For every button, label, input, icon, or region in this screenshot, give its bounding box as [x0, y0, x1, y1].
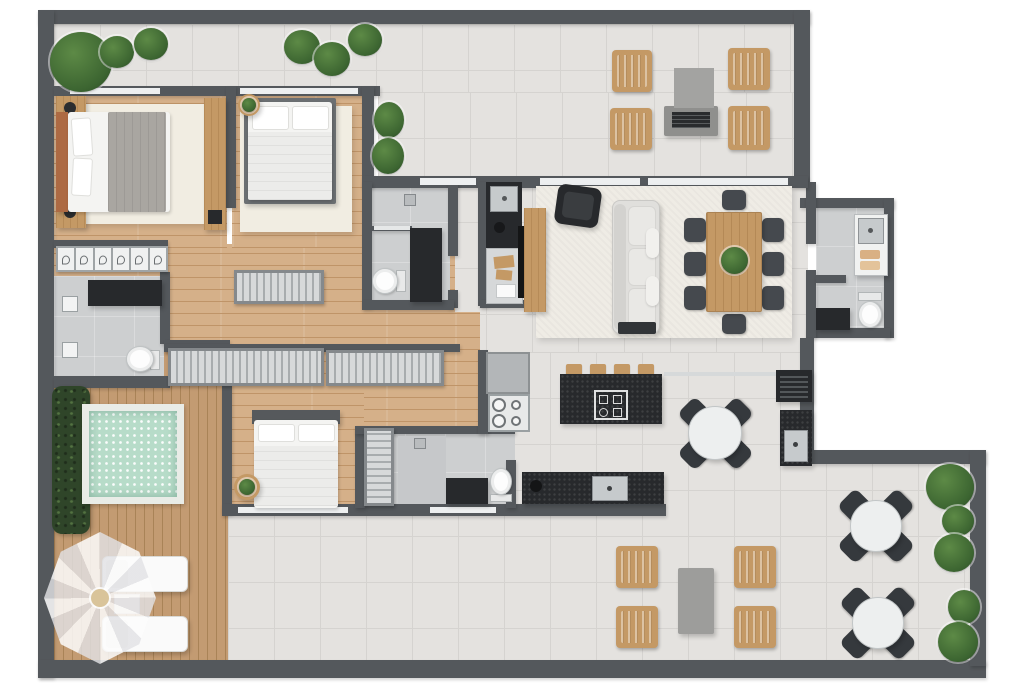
- wardrobe-rail: [237, 273, 321, 301]
- burner: [613, 395, 622, 404]
- potted-plant: [374, 102, 404, 138]
- potted-plant: [348, 24, 382, 56]
- wall-segment: [448, 182, 458, 256]
- wall-segment: [812, 450, 986, 464]
- fire-table-top: [674, 68, 714, 108]
- sliding-glass-door: [540, 178, 640, 185]
- outdoor-coffee-table: [678, 568, 714, 634]
- wall-segment: [794, 10, 810, 186]
- toilet-tank: [858, 292, 882, 301]
- potted-plant: [942, 506, 974, 536]
- dining-chair: [722, 190, 746, 210]
- counter-basin: [530, 480, 542, 492]
- wardrobe-rail: [171, 351, 321, 383]
- wardrobe: [326, 350, 444, 386]
- potted-plant: [934, 534, 974, 572]
- plunge-pool: [82, 404, 184, 504]
- chair-slats: [621, 551, 653, 583]
- potted-plant: [100, 36, 134, 68]
- wall-segment: [806, 270, 816, 338]
- outside-mask: [810, 336, 1024, 452]
- dining-chair: [684, 218, 706, 242]
- dining-chair: [762, 286, 784, 310]
- toilet-bowl: [126, 346, 154, 372]
- tv-console: [524, 208, 546, 312]
- potted-plant: [242, 98, 256, 112]
- wood-lounge-chair: [728, 48, 770, 90]
- closet-module: [95, 248, 111, 270]
- bathroom3-vanity: [446, 478, 488, 504]
- pillow: [258, 424, 295, 442]
- burner: [511, 416, 521, 426]
- potted-plant: [134, 28, 168, 60]
- parasol-pole: [91, 589, 109, 607]
- sofa-bolster: [646, 276, 659, 306]
- towel: [860, 261, 880, 270]
- toilet-bowl: [490, 468, 512, 495]
- linen-shelf: [364, 428, 394, 506]
- closet-module: [113, 248, 129, 270]
- grill-grate: [780, 376, 808, 398]
- sliding-glass-door: [648, 178, 788, 185]
- wood-lounge-chair: [616, 606, 658, 648]
- chair-slats: [733, 53, 765, 85]
- window: [240, 88, 358, 94]
- burner: [599, 408, 608, 417]
- toilet-tank: [490, 494, 512, 502]
- wardrobe: [234, 270, 324, 304]
- closet-module: [131, 248, 147, 270]
- wood-lounge-chair: [616, 546, 658, 588]
- chair-slats: [617, 55, 647, 87]
- burner: [492, 414, 506, 428]
- bathroomR-cabinet: [816, 308, 850, 330]
- wardrobe-rail: [329, 353, 441, 383]
- cutting-board: [493, 255, 514, 269]
- closet-module: [150, 248, 166, 270]
- potted-plant: [926, 464, 974, 510]
- bistro-table: [852, 597, 904, 649]
- counter-basin: [494, 222, 505, 233]
- table-centerpiece-plant: [721, 247, 748, 274]
- towel-bar: [374, 226, 410, 230]
- wood-lounge-chair: [610, 108, 652, 150]
- chair-slats: [615, 113, 647, 145]
- potted-plant: [314, 42, 350, 76]
- faucet: [868, 228, 873, 233]
- potted-plant: [50, 32, 112, 92]
- cutting-board: [496, 269, 513, 280]
- faucet: [793, 442, 798, 447]
- bed2-duvet: [248, 132, 332, 200]
- kitchen-counter-dark: [486, 214, 522, 250]
- wall-segment: [38, 10, 810, 24]
- pillow: [71, 158, 93, 197]
- dining-chair: [684, 286, 706, 310]
- wall-cabinet: [62, 296, 78, 312]
- burner: [492, 398, 506, 412]
- bed1-blanket: [108, 112, 166, 212]
- wall-segment: [222, 384, 232, 514]
- closet-module-row: [56, 246, 168, 272]
- chair-slats: [739, 611, 771, 643]
- wall-segment: [816, 275, 846, 283]
- shelf-slats: [367, 431, 391, 503]
- potted-plant: [239, 479, 255, 495]
- entry-glass-door: [420, 178, 476, 185]
- glass-rail: [664, 372, 778, 376]
- wood-lounge-chair: [734, 546, 776, 588]
- floor-hallway-ext: [455, 312, 480, 434]
- sofa-backrest: [614, 204, 626, 330]
- wall-segment: [226, 86, 236, 208]
- dining-chair: [762, 252, 784, 276]
- round-dining-table: [688, 406, 742, 460]
- burner: [613, 408, 622, 417]
- shower-head: [404, 194, 416, 206]
- dining-chair: [722, 314, 746, 334]
- bed1-headboard: [56, 112, 68, 212]
- sofa-base: [618, 322, 656, 334]
- pillow: [71, 117, 94, 156]
- shower-head: [414, 438, 426, 449]
- bed3-duvet: [254, 446, 338, 506]
- sofa-bolster: [646, 228, 659, 258]
- bathroom2-vanity: [410, 228, 442, 302]
- laundry-counter: [88, 280, 162, 306]
- window: [430, 507, 496, 513]
- wardrobe: [168, 348, 324, 386]
- potted-plant: [938, 622, 978, 662]
- closet-module: [58, 248, 74, 270]
- toilet-bowl: [858, 301, 882, 328]
- wood-lounge-chair: [612, 50, 652, 92]
- burner: [511, 400, 521, 410]
- faucet: [607, 486, 612, 491]
- chair-slats: [733, 111, 765, 145]
- wall-segment: [38, 660, 986, 678]
- towel: [860, 250, 880, 259]
- wall-segment: [362, 182, 372, 308]
- wood-lounge-chair: [734, 606, 776, 648]
- dining-chair: [762, 218, 784, 242]
- wall-cabinet: [62, 342, 78, 358]
- wall-segment: [362, 86, 374, 186]
- refrigerator: [486, 352, 530, 394]
- closet-module: [76, 248, 92, 270]
- floor-plan: [0, 0, 1024, 689]
- bistro-table: [850, 500, 902, 552]
- burner: [599, 395, 608, 404]
- tv: [518, 226, 524, 298]
- pillow: [298, 424, 335, 442]
- fire-pit-slot: [672, 112, 710, 128]
- toilet-bowl: [372, 268, 398, 294]
- wall-segment: [806, 182, 816, 244]
- potted-plant: [372, 138, 404, 174]
- chair-slats: [621, 611, 653, 643]
- counter-appliance: [496, 284, 516, 298]
- potted-plant: [948, 590, 980, 624]
- dining-chair: [684, 252, 706, 276]
- wood-lounge-chair: [728, 106, 770, 150]
- armchair-seat: [561, 191, 594, 221]
- pillow: [292, 106, 329, 130]
- dresser-tray: [208, 210, 222, 224]
- faucet: [502, 196, 507, 201]
- chair-slats: [739, 551, 771, 583]
